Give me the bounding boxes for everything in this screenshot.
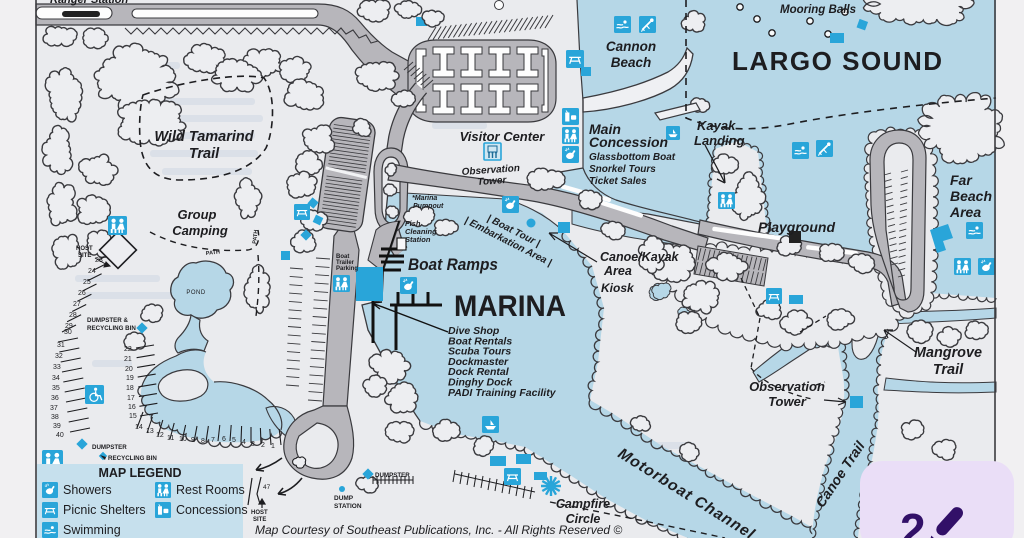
svg-text:28: 28 <box>69 312 77 319</box>
svg-text:Campfire: Campfire <box>556 497 610 511</box>
svg-text:2: 2 <box>261 442 265 449</box>
svg-text:DUMPSTER &: DUMPSTER & <box>87 317 128 324</box>
svg-text:40: 40 <box>56 432 64 439</box>
svg-text:*Marina: *Marina <box>412 195 437 202</box>
svg-text:Cannon: Cannon <box>606 39 656 54</box>
svg-text:Beach: Beach <box>950 188 992 204</box>
svg-text:19: 19 <box>126 375 134 382</box>
svg-text:Pumpout: Pumpout <box>413 203 444 210</box>
svg-text:Far: Far <box>950 172 973 188</box>
svg-text:7: 7 <box>211 437 215 444</box>
svg-text:DUMP: DUMP <box>334 495 354 502</box>
svg-text:Playground: Playground <box>758 219 835 235</box>
svg-text:HOST: HOST <box>76 246 93 252</box>
svg-text:10: 10 <box>179 436 187 443</box>
svg-text:5: 5 <box>232 437 236 444</box>
svg-text:26: 26 <box>78 290 86 297</box>
svg-text:MAP LEGEND: MAP LEGEND <box>98 466 181 480</box>
svg-text:STATION: STATION <box>334 503 362 510</box>
svg-text:Kayak: Kayak <box>697 118 736 133</box>
svg-text:18: 18 <box>126 385 134 392</box>
svg-text:Map Courtesy of Southeast Publ: Map Courtesy of Southeast Publications, … <box>255 523 622 537</box>
svg-text:39: 39 <box>53 423 61 430</box>
svg-text:2: 2 <box>900 504 926 538</box>
svg-text:MARINA: MARINA <box>454 290 566 323</box>
svg-text:RECYCLING BIN: RECYCLING BIN <box>87 325 136 332</box>
svg-text:14: 14 <box>135 424 143 431</box>
svg-text:Tower: Tower <box>768 394 807 409</box>
svg-text:38: 38 <box>51 414 59 421</box>
svg-text:6: 6 <box>222 436 226 443</box>
svg-text:Picnic Shelters: Picnic Shelters <box>63 503 146 517</box>
svg-text:Area: Area <box>603 264 632 278</box>
svg-text:17: 17 <box>127 395 135 402</box>
svg-text:Trail: Trail <box>189 146 220 162</box>
svg-text:Mangrove: Mangrove <box>914 345 982 361</box>
svg-text:Boat Ramps: Boat Ramps <box>408 255 498 274</box>
svg-text:Trail: Trail <box>933 362 964 378</box>
svg-text:Area: Area <box>949 204 981 220</box>
svg-text:Ticket Sales: Ticket Sales <box>589 176 647 187</box>
svg-text:Camping: Camping <box>172 223 228 238</box>
svg-text:8: 8 <box>201 438 205 445</box>
svg-text:LARGO SOUND: LARGO SOUND <box>732 46 944 76</box>
svg-text:15: 15 <box>129 413 137 420</box>
svg-text:Concessions: Concessions <box>176 503 248 517</box>
svg-text:Visitor Center: Visitor Center <box>460 129 546 144</box>
svg-text:Kiosk: Kiosk <box>601 281 635 295</box>
svg-text:12: 12 <box>156 432 164 439</box>
svg-text:Rest Rooms: Rest Rooms <box>176 483 245 497</box>
svg-text:25: 25 <box>83 279 91 286</box>
svg-text:21: 21 <box>124 356 132 363</box>
svg-text:37: 37 <box>50 405 58 412</box>
svg-text:16: 16 <box>128 404 136 411</box>
svg-text:Wild Tamarind: Wild Tamarind <box>154 129 254 145</box>
svg-text:Tower: Tower <box>477 175 508 188</box>
svg-text:20: 20 <box>125 366 133 373</box>
svg-text:1: 1 <box>271 443 275 450</box>
svg-text:34: 34 <box>52 375 60 382</box>
svg-text:3: 3 <box>251 441 255 448</box>
svg-text:31: 31 <box>57 342 65 349</box>
svg-text:DUMPSTER: DUMPSTER <box>375 472 410 479</box>
svg-text:Ranger Station: Ranger Station <box>50 0 129 6</box>
svg-text:Observation: Observation <box>749 379 825 394</box>
svg-text:DUMPSTER: DUMPSTER <box>92 444 127 451</box>
svg-text:SITE: SITE <box>78 253 91 259</box>
svg-text:32: 32 <box>55 353 63 360</box>
svg-text:47: 47 <box>263 484 271 491</box>
svg-text:PADI Training Facility: PADI Training Facility <box>448 387 557 399</box>
svg-text:Beach: Beach <box>611 55 652 70</box>
svg-text:24: 24 <box>88 268 96 275</box>
svg-text:Station: Station <box>405 235 431 244</box>
svg-text:Concession: Concession <box>589 134 668 150</box>
svg-text:Showers: Showers <box>63 483 112 497</box>
svg-text:22: 22 <box>124 346 132 353</box>
svg-text:4: 4 <box>242 439 246 446</box>
svg-text:Swimming: Swimming <box>63 523 121 537</box>
svg-text:11: 11 <box>167 435 174 442</box>
svg-text:POND: POND <box>186 290 206 296</box>
svg-text:33: 33 <box>53 364 61 371</box>
svg-text:Canoe/Kayak: Canoe/Kayak <box>600 250 680 264</box>
svg-text:Parking: Parking <box>336 266 358 272</box>
svg-text:HOST: HOST <box>251 510 268 516</box>
svg-text:Snorkel Tours: Snorkel Tours <box>589 164 656 175</box>
svg-text:Group: Group <box>178 207 217 222</box>
svg-text:Glassbottom Boat: Glassbottom Boat <box>589 152 676 163</box>
svg-text:9: 9 <box>191 437 195 444</box>
svg-text:27: 27 <box>73 301 81 308</box>
svg-text:Landing: Landing <box>694 133 745 148</box>
svg-text:Mooring Balls: Mooring Balls <box>780 4 856 16</box>
svg-text:13: 13 <box>146 428 154 435</box>
svg-text:36: 36 <box>51 395 59 402</box>
svg-text:30: 30 <box>64 329 72 336</box>
svg-text:RECYCLING BIN: RECYCLING BIN <box>108 455 157 462</box>
svg-text:35: 35 <box>52 385 60 392</box>
